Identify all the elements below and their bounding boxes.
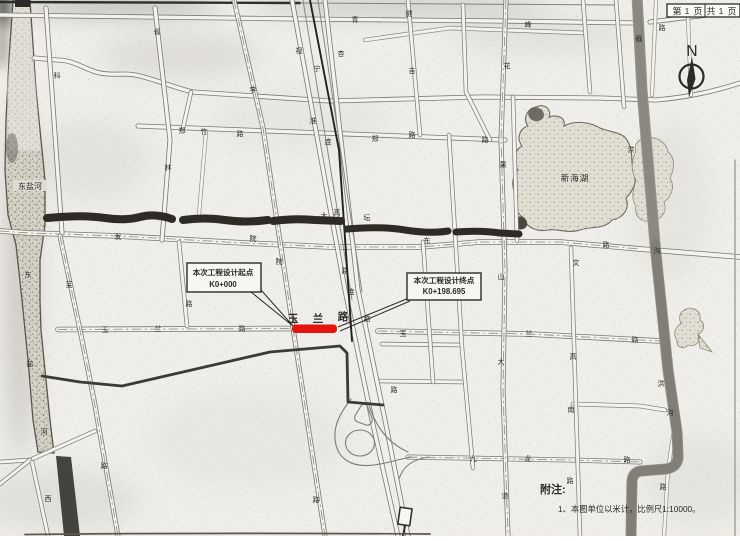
svg-text:科: 科 (54, 71, 61, 80)
svg-text:1: 1 (685, 6, 690, 16)
svg-text:路: 路 (482, 135, 489, 144)
svg-text:沟: 沟 (667, 408, 674, 417)
svg-text:1、本图单位以米计，比例尺1:10000。: 1、本图单位以米计，比例尺1:10000。 (558, 504, 700, 514)
svg-text:沟: 沟 (654, 246, 661, 255)
svg-text:健: 健 (406, 9, 413, 18)
svg-text:发: 发 (115, 232, 122, 241)
svg-text:路: 路 (660, 482, 667, 491)
svg-text:李: 李 (250, 85, 257, 94)
svg-text:杏: 杏 (338, 49, 345, 58)
svg-text:东: 东 (25, 270, 32, 279)
svg-text:路: 路 (313, 495, 320, 504)
svg-text:玉: 玉 (400, 330, 407, 338)
svg-text:附注:: 附注: (540, 482, 566, 496)
svg-text:路: 路 (567, 476, 574, 485)
svg-text:河: 河 (41, 428, 48, 436)
svg-text:路: 路 (101, 461, 108, 470)
svg-text:共: 共 (706, 7, 715, 17)
svg-text:高: 高 (570, 352, 577, 361)
svg-text:路: 路 (239, 324, 246, 333)
svg-text:路: 路 (603, 240, 610, 249)
svg-text:路: 路 (391, 385, 398, 394)
svg-text:芜: 芜 (66, 280, 73, 289)
svg-text:路: 路 (624, 455, 631, 464)
svg-text:郑: 郑 (179, 127, 186, 135)
svg-text:路: 路 (659, 23, 666, 32)
svg-text:竹: 竹 (201, 127, 208, 136)
svg-text:吉: 吉 (409, 67, 416, 75)
svg-text:文: 文 (573, 258, 580, 267)
svg-text:路: 路 (632, 335, 639, 344)
svg-text:兰: 兰 (313, 312, 324, 325)
svg-text:果: 果 (500, 161, 507, 169)
svg-text:东: 东 (424, 236, 431, 245)
svg-text:页: 页 (727, 7, 736, 17)
svg-text:本次工程设计起点: 本次工程设计起点 (193, 267, 254, 277)
svg-text:山: 山 (498, 272, 505, 281)
svg-text:玉: 玉 (102, 326, 109, 334)
svg-text:龙: 龙 (525, 454, 532, 463)
svg-text:洪: 洪 (628, 145, 635, 154)
svg-text:东盐河: 东盐河 (18, 181, 42, 191)
svg-text:坛: 坛 (364, 213, 371, 222)
svg-text:大: 大 (321, 211, 328, 220)
svg-text:1: 1 (719, 6, 724, 16)
svg-text:路: 路 (237, 129, 244, 138)
svg-text:花: 花 (504, 61, 511, 70)
svg-text:南: 南 (568, 405, 575, 414)
svg-text:道: 道 (502, 491, 509, 500)
svg-text:视: 视 (296, 46, 303, 55)
svg-text:九: 九 (470, 454, 477, 463)
svg-text:新海湖: 新海湖 (561, 173, 590, 183)
svg-text:截: 截 (636, 34, 643, 43)
svg-text:林: 林 (165, 163, 172, 172)
svg-text:院: 院 (276, 257, 283, 266)
svg-text:页: 页 (693, 7, 702, 17)
svg-text:盐: 盐 (27, 359, 34, 368)
svg-text:省: 省 (154, 27, 161, 36)
svg-text:院: 院 (250, 234, 257, 243)
svg-text:青: 青 (352, 15, 359, 24)
svg-text:兰: 兰 (155, 324, 162, 333)
svg-text:峰: 峰 (525, 20, 532, 29)
svg-text:宁: 宁 (314, 64, 321, 73)
svg-text:本次工程设计终点: 本次工程设计终点 (414, 275, 475, 285)
svg-text:高: 高 (334, 208, 341, 217)
svg-text:连: 连 (325, 137, 332, 146)
svg-text:路: 路 (409, 130, 416, 139)
svg-text:路: 路 (186, 299, 193, 308)
svg-text:连: 连 (348, 287, 355, 296)
svg-text:第: 第 (672, 6, 681, 17)
svg-text:郑: 郑 (372, 135, 379, 143)
svg-text:洪: 洪 (658, 379, 665, 388)
svg-text:淮: 淮 (310, 116, 317, 125)
svg-text:路: 路 (338, 310, 349, 323)
svg-text:K0+000: K0+000 (209, 280, 237, 289)
svg-text:路: 路 (342, 266, 349, 275)
svg-text:西: 西 (45, 495, 52, 503)
svg-text:K0+198.695: K0+198.695 (423, 287, 466, 296)
svg-text:大: 大 (498, 357, 505, 366)
svg-text:兰: 兰 (526, 329, 533, 338)
